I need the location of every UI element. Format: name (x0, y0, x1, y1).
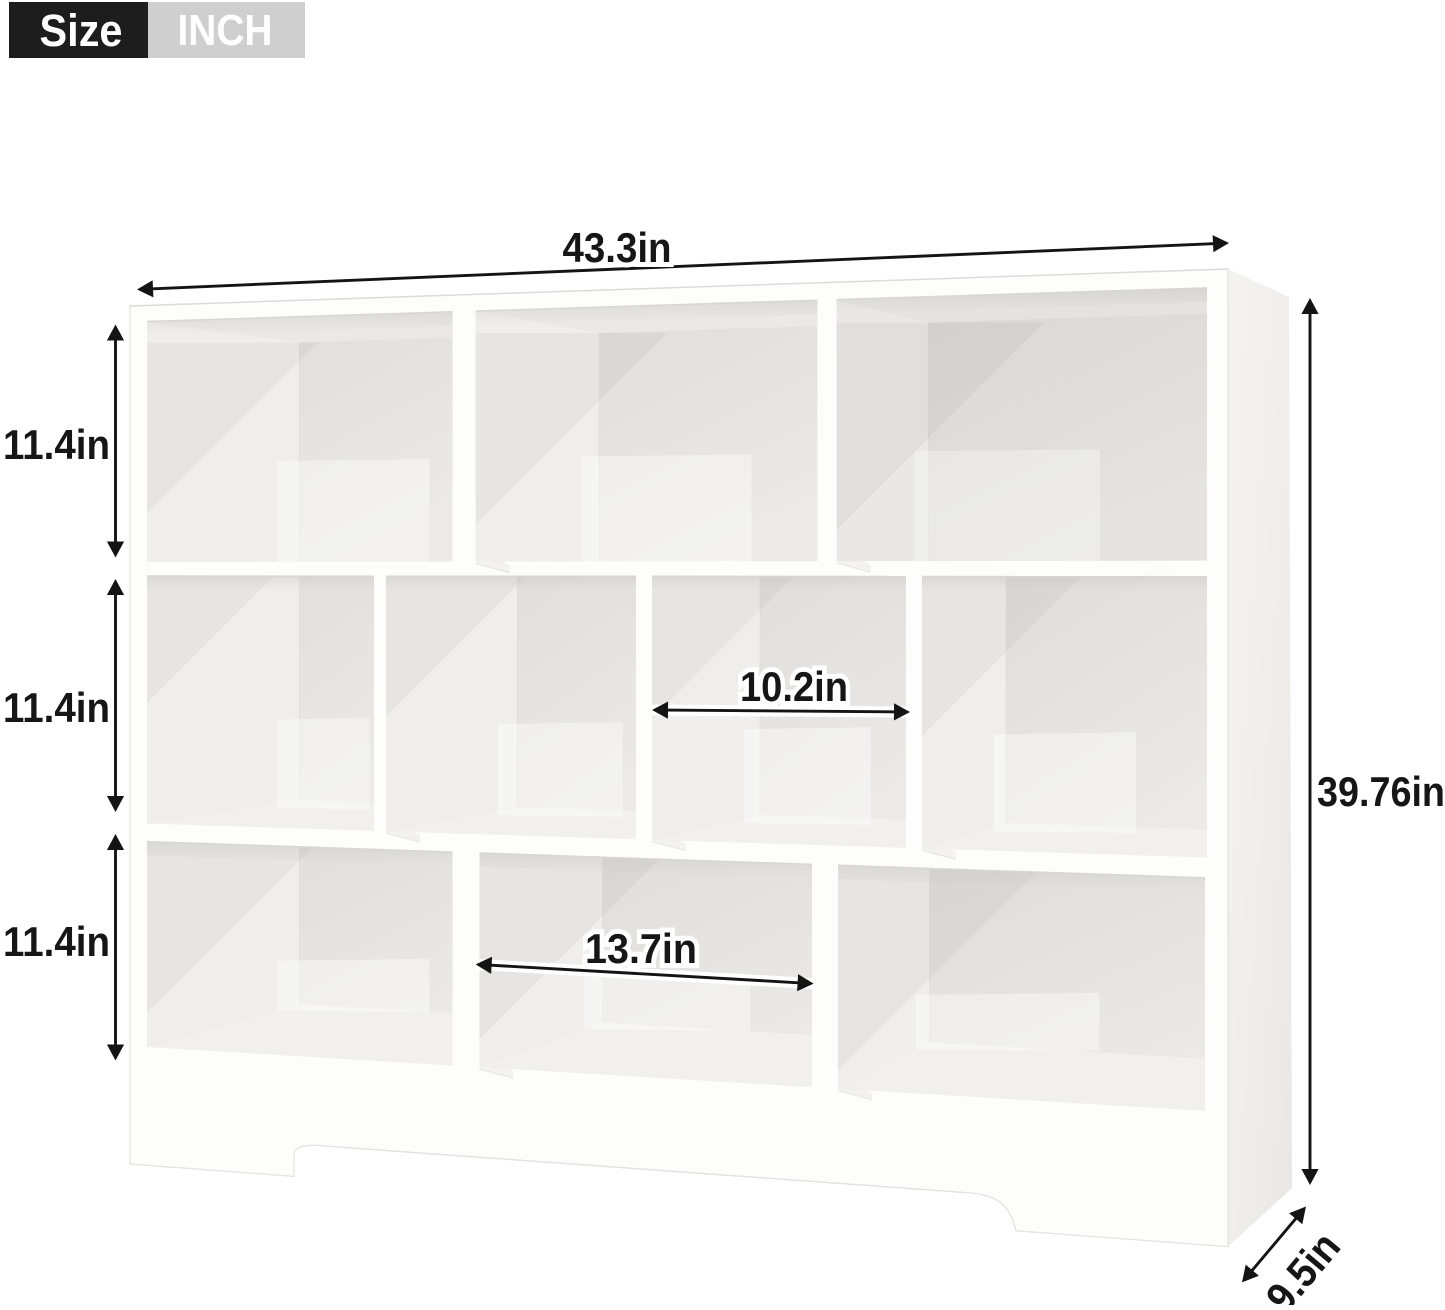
svg-text:11.4in: 11.4in (3, 684, 110, 731)
svg-text:INCH: INCH (178, 6, 273, 55)
svg-text:13.7in: 13.7in (585, 925, 697, 972)
svg-text:39.76in: 39.76in (1317, 768, 1445, 815)
svg-text:10.2in: 10.2in (740, 663, 848, 710)
svg-text:43.3in: 43.3in (563, 224, 672, 271)
svg-text:Size: Size (40, 5, 123, 56)
svg-text:11.4in: 11.4in (3, 918, 110, 965)
svg-text:11.4in: 11.4in (3, 421, 110, 468)
